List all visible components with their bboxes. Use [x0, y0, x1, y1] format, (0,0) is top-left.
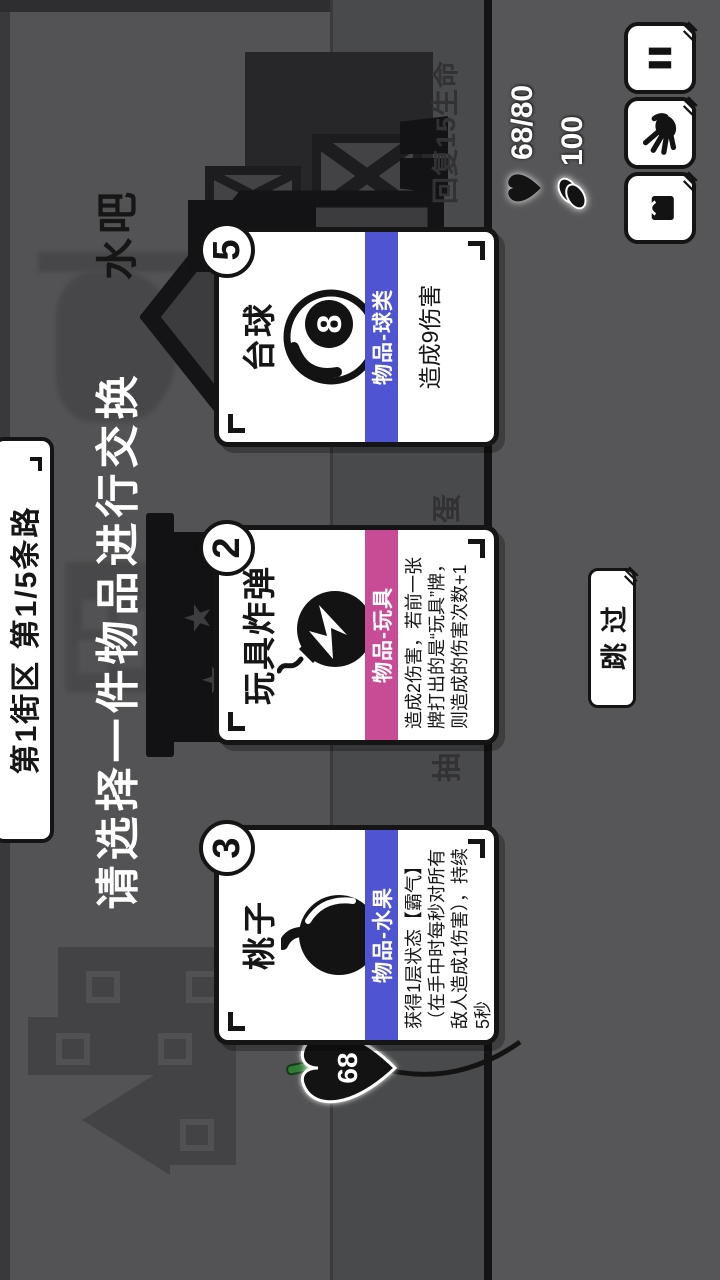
sketch-hatch-marks	[676, 96, 698, 118]
bag-button[interactable]	[624, 172, 696, 244]
shop-name-label: 水吧	[84, 188, 145, 280]
card-toy-bomb[interactable]: 2 玩具炸弹 物品-玩具 造成2伤害，若前一张牌打出的是“玩具”牌，则造成的伤害…	[214, 525, 499, 745]
sketch-hatch-marks	[676, 171, 698, 193]
card-type-stripe: 物品-水果	[365, 830, 398, 1040]
street-progress-label: 第1街区 第1/5条路	[1, 506, 45, 775]
skip-button[interactable]: 跳过	[588, 568, 636, 708]
card-cost-badge: 2	[199, 520, 255, 576]
card-description: 造成9伤害	[400, 232, 448, 442]
hand-cards-button[interactable]	[624, 97, 696, 169]
bomb-icon	[277, 585, 377, 685]
card-description: 造成2伤害，若前一张牌打出的是“玩具”牌，则造成的伤害次数+1	[400, 530, 475, 740]
pause-button[interactable]	[624, 22, 696, 94]
sketch-hatch-marks	[676, 21, 698, 43]
card-peach[interactable]: 3 桃子 物品-水果 获得1层状态【霸气】（在手中时每秒对所有敌人造成1伤害），…	[214, 825, 499, 1045]
coins-icon	[548, 170, 596, 218]
card-type-stripe: 物品-玩具	[365, 530, 398, 740]
hp-value: 68/80	[506, 85, 540, 160]
card-type-stripe: 物品-球类	[365, 232, 398, 442]
street-progress-badge: 第1街区 第1/5条路	[0, 437, 54, 843]
card-corner-bracket	[468, 241, 485, 260]
sketch-hatch-marks	[617, 566, 639, 588]
shop-heal-sign: 回复15生命	[424, 60, 463, 204]
coins-value: 100	[556, 116, 590, 166]
stall-awning-bar	[146, 513, 174, 757]
card-cost-badge: 5	[199, 222, 255, 278]
card-cost-badge: 3	[199, 820, 255, 876]
heart-icon	[502, 166, 546, 210]
skip-button-label: 跳过	[593, 596, 632, 670]
card-description: 获得1层状态【霸气】（在手中时每秒对所有敌人造成1伤害），持续5秒	[400, 830, 498, 1040]
card-billiards[interactable]: 5 台球 8 物品-球类 造成9伤害	[214, 227, 499, 447]
game-viewport: ★ ★ 回复15生命 抽一次扭蛋 68 第1街区 第1/5条路 请选择一件物品进…	[0, 0, 720, 1280]
badge-corner-mark	[30, 457, 42, 471]
svg-text:8: 8	[311, 315, 349, 334]
player-hp-label: 68	[332, 1052, 363, 1083]
pause-icon	[640, 38, 680, 78]
star-icon: ★	[180, 602, 216, 634]
rotated-game-stage: ★ ★ 回复15生命 抽一次扭蛋 68 第1街区 第1/5条路 请选择一件物品进…	[0, 0, 720, 1280]
